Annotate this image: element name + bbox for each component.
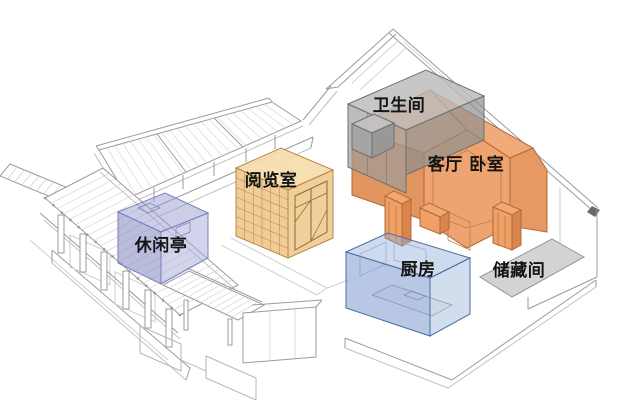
west-colonnade — [30, 168, 238, 380]
axonometric-drawing — [0, 0, 640, 408]
label-storage: 储藏间 — [493, 262, 546, 281]
label-reading-room: 阅览室 — [245, 172, 298, 191]
label-kitchen: 厨房 — [401, 261, 436, 280]
zone-reading-room — [236, 148, 333, 258]
axonometric-diagram: 卫生间 客厅 卧室 阅览室 休闲亭 厨房 储藏间 — [0, 0, 640, 408]
label-living-bedroom: 客厅 卧室 — [428, 156, 504, 175]
label-pavilion: 休闲亭 — [135, 237, 188, 256]
label-bathroom: 卫生间 — [373, 97, 426, 116]
zone-kitchen — [346, 233, 470, 336]
